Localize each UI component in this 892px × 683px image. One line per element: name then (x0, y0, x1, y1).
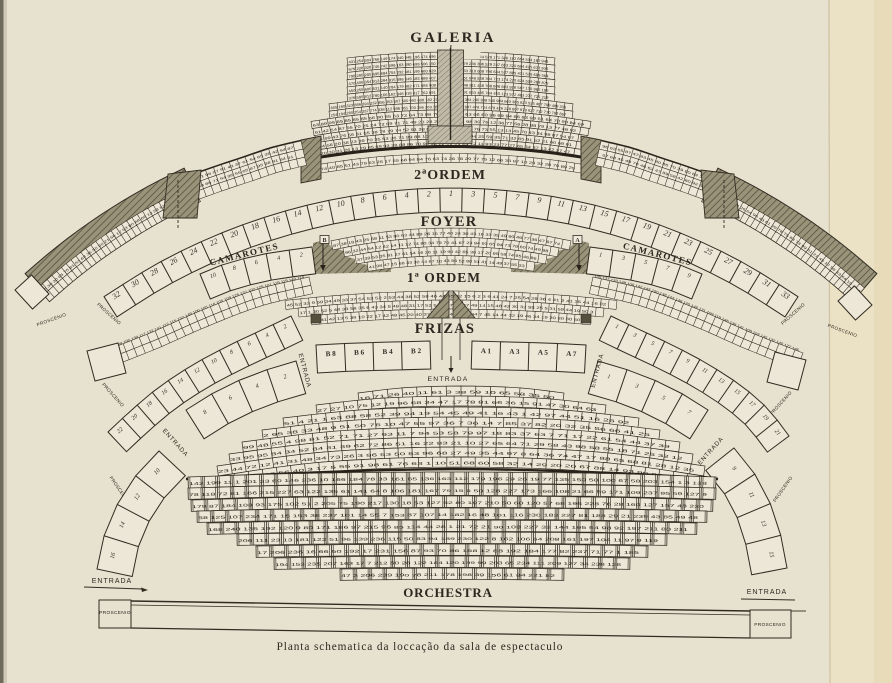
svg-text:2: 2 (427, 189, 431, 198)
svg-text:B 2: B 2 (411, 347, 422, 355)
svg-text:B 4: B 4 (382, 348, 393, 356)
svg-text:A 5: A 5 (538, 349, 549, 357)
svg-text:A 1: A 1 (481, 347, 492, 355)
svg-text:B: B (322, 238, 326, 244)
svg-text:B 6: B 6 (354, 349, 365, 357)
svg-text:A 7: A 7 (566, 350, 577, 359)
svg-text:ORCHESTRA: ORCHESTRA (403, 585, 493, 600)
svg-text:5: 5 (493, 190, 498, 199)
svg-text:ENTRADA: ENTRADA (92, 578, 132, 585)
svg-text:A 3: A 3 (509, 348, 520, 356)
svg-text:ENTRADA: ENTRADA (747, 589, 787, 596)
svg-text:B 8: B 8 (325, 350, 336, 359)
svg-text:FRIZAS: FRIZAS (415, 321, 475, 337)
svg-text:A: A (575, 238, 580, 244)
svg-text:1ª ORDEM: 1ª ORDEM (407, 270, 481, 285)
svg-text:4: 4 (404, 190, 409, 199)
svg-text:10: 10 (336, 199, 346, 209)
svg-text:3: 3 (470, 189, 475, 198)
svg-text:2ªORDEM: 2ªORDEM (414, 168, 486, 183)
svg-text:FOYER: FOYER (421, 214, 478, 230)
svg-text:ENTRADA: ENTRADA (428, 376, 469, 383)
svg-text:PROSCENIO: PROSCENIO (754, 622, 786, 628)
svg-text:PROSCENIO: PROSCENIO (99, 610, 131, 616)
svg-text:15: 15 (767, 551, 775, 558)
svg-text:GALERIA: GALERIA (410, 30, 495, 46)
svg-text:Planta schematica da loccação: Planta schematica da loccação da sala de… (277, 641, 564, 653)
svg-text:1: 1 (449, 189, 453, 198)
